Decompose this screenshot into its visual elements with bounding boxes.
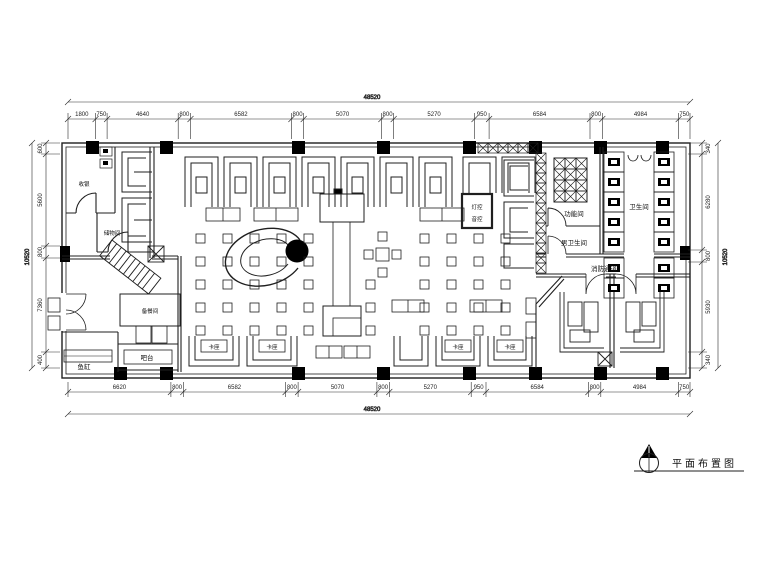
dim-label: 7360 bbox=[38, 298, 44, 312]
dim-label: 750 bbox=[96, 112, 107, 118]
dim-label: 4984 bbox=[634, 112, 648, 118]
top-booth-row bbox=[185, 157, 535, 207]
dim-label: 800 bbox=[706, 250, 712, 261]
dim-label: 800 bbox=[383, 112, 394, 118]
dim-label: 400 bbox=[38, 354, 44, 365]
dim-label: 950 bbox=[477, 112, 488, 118]
dim-label: 800 bbox=[179, 112, 190, 118]
function-room-label: 功能间 bbox=[564, 209, 584, 218]
c-logo-decoration bbox=[225, 228, 308, 286]
dim-label: 800 bbox=[591, 112, 602, 118]
dim-label: 5070 bbox=[331, 385, 345, 391]
cashier-label: 收银 bbox=[78, 180, 90, 188]
dim-label: 6582 bbox=[234, 112, 248, 118]
dim-label: 750 bbox=[679, 385, 690, 391]
dim-label: 5930 bbox=[706, 300, 712, 314]
booth-label-3: 卡座 bbox=[452, 343, 464, 351]
dim-label: 800 bbox=[287, 385, 298, 391]
stage-runway bbox=[320, 189, 364, 336]
function-room-grid bbox=[554, 158, 587, 202]
dim-label: 600 bbox=[38, 143, 44, 154]
title-block: 平面布置图 bbox=[634, 444, 744, 473]
dim-label: 1800 bbox=[75, 112, 89, 118]
dim-label: 750 bbox=[679, 112, 690, 118]
right-total-dim: 10520 bbox=[723, 248, 729, 265]
booth-label-4: 卡座 bbox=[504, 343, 516, 351]
top-total-dim: 48520 bbox=[364, 95, 381, 101]
dim-label: 340 bbox=[706, 143, 712, 154]
dim-label: 800 bbox=[293, 112, 304, 118]
left-total-dim: 10520 bbox=[25, 248, 31, 265]
wc-label: 卫生间 bbox=[629, 202, 649, 211]
room-labels: 收银 储物间 备餐间 吧台 鱼缸 功能间 男卫生间 卫生间 消防通道 卡座 卡座… bbox=[78, 180, 649, 371]
dim-label: 6584 bbox=[531, 385, 545, 391]
control-room-label-2: 音控 bbox=[471, 215, 483, 223]
private-room-furniture bbox=[526, 292, 664, 366]
fire-passage-label: 消防通道 bbox=[591, 264, 618, 273]
urinal-icons bbox=[628, 155, 651, 161]
bottom-booth-row bbox=[189, 336, 532, 366]
dim-label: 4984 bbox=[633, 385, 647, 391]
bar-label: 吧台 bbox=[141, 353, 154, 362]
dim-label: 4640 bbox=[136, 112, 150, 118]
dim-label: 800 bbox=[378, 385, 389, 391]
dim-label: 6582 bbox=[228, 385, 242, 391]
drawing-title: 平面布置图 bbox=[672, 458, 737, 470]
dim-label: 800 bbox=[172, 385, 183, 391]
dim-label: 800 bbox=[590, 385, 601, 391]
service-room-label: 备餐间 bbox=[142, 307, 159, 315]
dim-label: 800 bbox=[38, 246, 44, 257]
floor-plan-canvas: 灯控 音控 收银 储物间 备餐间 bbox=[0, 0, 760, 570]
dim-label: 5070 bbox=[336, 112, 350, 118]
mens-wc-label: 男卫生间 bbox=[561, 238, 587, 247]
booth-label-2: 卡座 bbox=[266, 343, 278, 351]
dim-label: 340 bbox=[706, 354, 712, 365]
dim-label: 6620 bbox=[113, 385, 127, 391]
dim-label: 5270 bbox=[424, 385, 438, 391]
dim-label: 950 bbox=[474, 385, 485, 391]
dim-label: 5270 bbox=[427, 112, 441, 118]
bottom-total-dim: 48520 bbox=[364, 407, 381, 413]
north-compass-icon bbox=[640, 444, 659, 473]
fish-tank-label: 鱼缸 bbox=[78, 362, 92, 371]
dim-label: 6584 bbox=[533, 112, 547, 118]
control-room-label-1: 灯控 bbox=[471, 203, 483, 211]
dim-label: 6280 bbox=[706, 195, 712, 209]
booth-label-1: 卡座 bbox=[208, 343, 220, 351]
storage-label: 储物间 bbox=[104, 229, 121, 237]
control-room: 灯控 音控 bbox=[462, 194, 492, 228]
dim-label: 5600 bbox=[38, 193, 44, 207]
floor-plan-drawing: 灯控 音控 收银 储物间 备餐间 bbox=[0, 0, 760, 570]
